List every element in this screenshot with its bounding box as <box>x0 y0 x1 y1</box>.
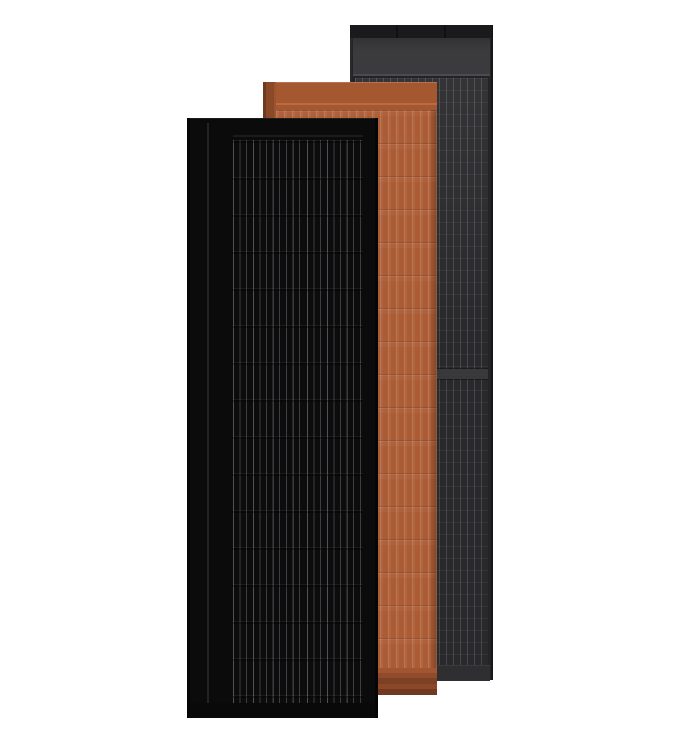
black-panel-top-seam <box>233 135 363 137</box>
black-panel-cell-rows <box>233 140 363 703</box>
black-panel-cell-grid <box>233 140 363 703</box>
black-panel-bottom-frame <box>190 703 375 718</box>
terracotta-panel-top-band <box>276 82 437 110</box>
product-render-canvas <box>0 0 684 748</box>
black-solar-panel <box>187 118 378 718</box>
black-panel-flange-seam <box>207 123 209 713</box>
gray-panel-header-band <box>353 38 490 76</box>
gray-panel-top-cap <box>350 25 493 38</box>
